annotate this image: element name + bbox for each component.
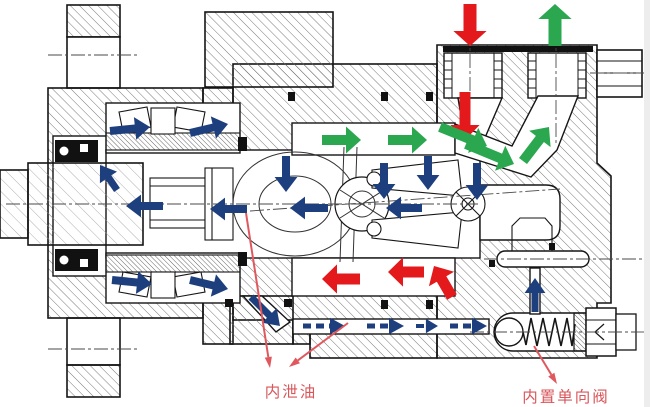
piston-ball bbox=[367, 222, 381, 236]
hex-bolt bbox=[597, 50, 642, 97]
bearing-cage bbox=[151, 272, 175, 298]
shaft-seal-lower bbox=[55, 249, 98, 271]
bearing-cage bbox=[151, 108, 175, 134]
pump-cross-section-diagram: 内泄油 内置单向阀 bbox=[0, 0, 650, 407]
top-boss bbox=[205, 12, 333, 87]
mounting-stud-top bbox=[67, 5, 120, 88]
bearing-inner-race bbox=[106, 133, 240, 150]
outlet-port-bore bbox=[528, 53, 586, 98]
cylinder-stem bbox=[480, 185, 560, 240]
inlet-channel bbox=[292, 258, 455, 296]
retainer-seal bbox=[238, 137, 247, 151]
retainer-seal bbox=[238, 252, 247, 266]
drawing-canvas: 内泄油 内置单向阀 bbox=[0, 0, 650, 407]
piston-ball bbox=[367, 172, 381, 186]
outlet-channel bbox=[292, 123, 455, 155]
image-edge-strip bbox=[644, 0, 650, 407]
port-face-strip bbox=[443, 46, 593, 52]
label-built-in-check-valve: 内置单向阀 bbox=[522, 388, 610, 406]
mounting-stud-bottom bbox=[67, 318, 120, 397]
inlet-port-bore bbox=[444, 53, 502, 98]
shaft-seal-upper bbox=[55, 140, 98, 162]
bearing-inner-race bbox=[106, 255, 240, 272]
label-internal-leak-oil: 内泄油 bbox=[265, 383, 318, 401]
